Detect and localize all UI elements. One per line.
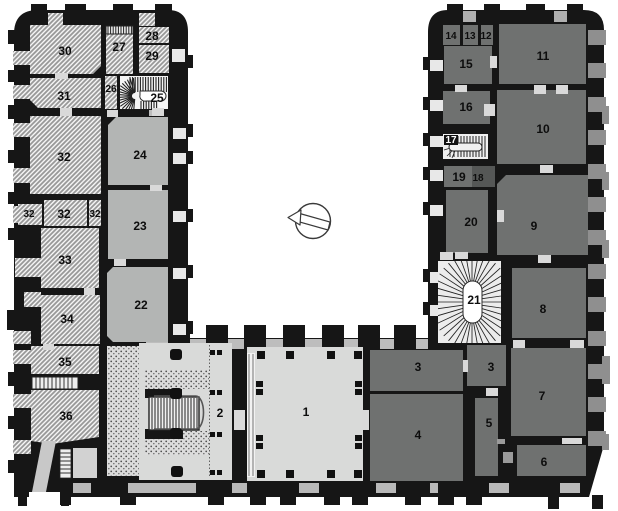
svg-text:16: 16 [459,100,473,114]
svg-text:1: 1 [303,405,310,419]
svg-text:34: 34 [60,312,74,326]
svg-text:5: 5 [486,416,493,430]
svg-text:32: 32 [89,209,101,220]
svg-text:32: 32 [57,150,71,164]
svg-text:21: 21 [467,293,481,307]
svg-text:10: 10 [536,122,550,136]
svg-text:35: 35 [58,355,72,369]
svg-text:20: 20 [464,215,478,229]
svg-text:23: 23 [133,219,147,233]
svg-text:13: 13 [464,31,476,42]
svg-text:9: 9 [531,219,538,233]
svg-text:33: 33 [58,253,72,267]
svg-text:26: 26 [105,84,117,95]
svg-text:32: 32 [23,209,35,220]
svg-text:25: 25 [150,91,164,105]
svg-text:22: 22 [134,298,148,312]
svg-text:3: 3 [488,360,495,374]
svg-text:32: 32 [57,207,71,221]
svg-text:31: 31 [57,89,71,103]
svg-text:12: 12 [480,31,492,42]
svg-text:27: 27 [112,40,126,54]
svg-text:15: 15 [459,57,473,71]
svg-text:19: 19 [452,170,466,184]
svg-text:17: 17 [445,135,457,146]
svg-text:14: 14 [445,31,457,42]
svg-text:30: 30 [58,44,72,58]
svg-text:3: 3 [415,360,422,374]
svg-text:2: 2 [217,406,224,420]
svg-text:6: 6 [541,455,548,469]
svg-text:28: 28 [145,29,159,43]
svg-text:11: 11 [537,49,550,63]
svg-text:29: 29 [145,49,159,63]
svg-text:4: 4 [415,428,422,442]
svg-text:36: 36 [59,409,73,423]
svg-text:24: 24 [133,148,147,162]
svg-text:8: 8 [540,302,547,316]
svg-text:7: 7 [539,389,546,403]
svg-text:18: 18 [472,173,484,184]
